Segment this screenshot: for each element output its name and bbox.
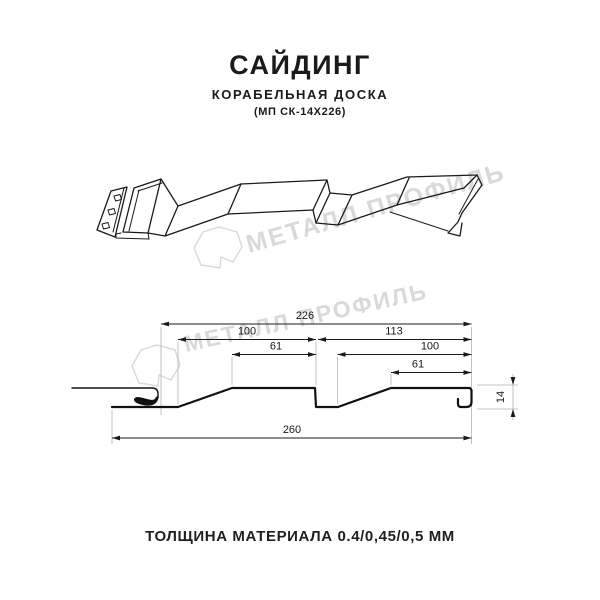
dim-value-100-right: 100	[421, 341, 439, 353]
profile-outline	[112, 388, 472, 407]
dimension-board2-top-flat: 61	[391, 359, 472, 375]
watermark-logo-icon	[194, 227, 242, 268]
dim-value-113: 113	[385, 326, 403, 338]
nail-hole	[114, 195, 122, 202]
profile-cross-section	[72, 388, 472, 407]
nail-hole	[102, 223, 110, 230]
dim-value-100-left: 100	[238, 326, 256, 338]
adjacent-panel-edge	[72, 388, 158, 398]
dimension-board2-span: 113	[318, 326, 472, 342]
dimension-total-width: 260	[112, 424, 472, 440]
dim-value-14: 14	[495, 391, 507, 403]
dim-value-226: 226	[296, 310, 314, 322]
lock-flange	[123, 179, 161, 233]
product-drawing-page: САЙДИНГ КОРАБЕЛЬНАЯ ДОСКА (МП СК-14Х226)…	[0, 0, 600, 600]
thickness-note: ТОЛЩИНА МАТЕРИАЛА 0.4/0,45/0,5 ММ	[0, 528, 600, 545]
watermark-logo-icon	[132, 345, 180, 386]
dimension-board2-width: 100	[338, 341, 472, 357]
dim-value-260: 260	[283, 424, 301, 436]
watermark-text-upper: МЕТАЛЛ ПРОФИЛЬ	[243, 158, 509, 259]
dimension-lines: 226 100 113 61	[112, 310, 515, 440]
extension-lines	[112, 327, 518, 444]
dimension-profile-height: 14	[495, 377, 515, 417]
dim-value-61-right: 61	[412, 359, 424, 371]
technical-drawing-canvas: МЕТАЛЛ ПРОФИЛЬ МЕТАЛЛ ПРОФИЛЬ	[0, 0, 600, 600]
lock-hook-detail	[134, 396, 158, 405]
dim-value-61-left: 61	[270, 341, 282, 353]
nail-hole	[108, 209, 116, 216]
